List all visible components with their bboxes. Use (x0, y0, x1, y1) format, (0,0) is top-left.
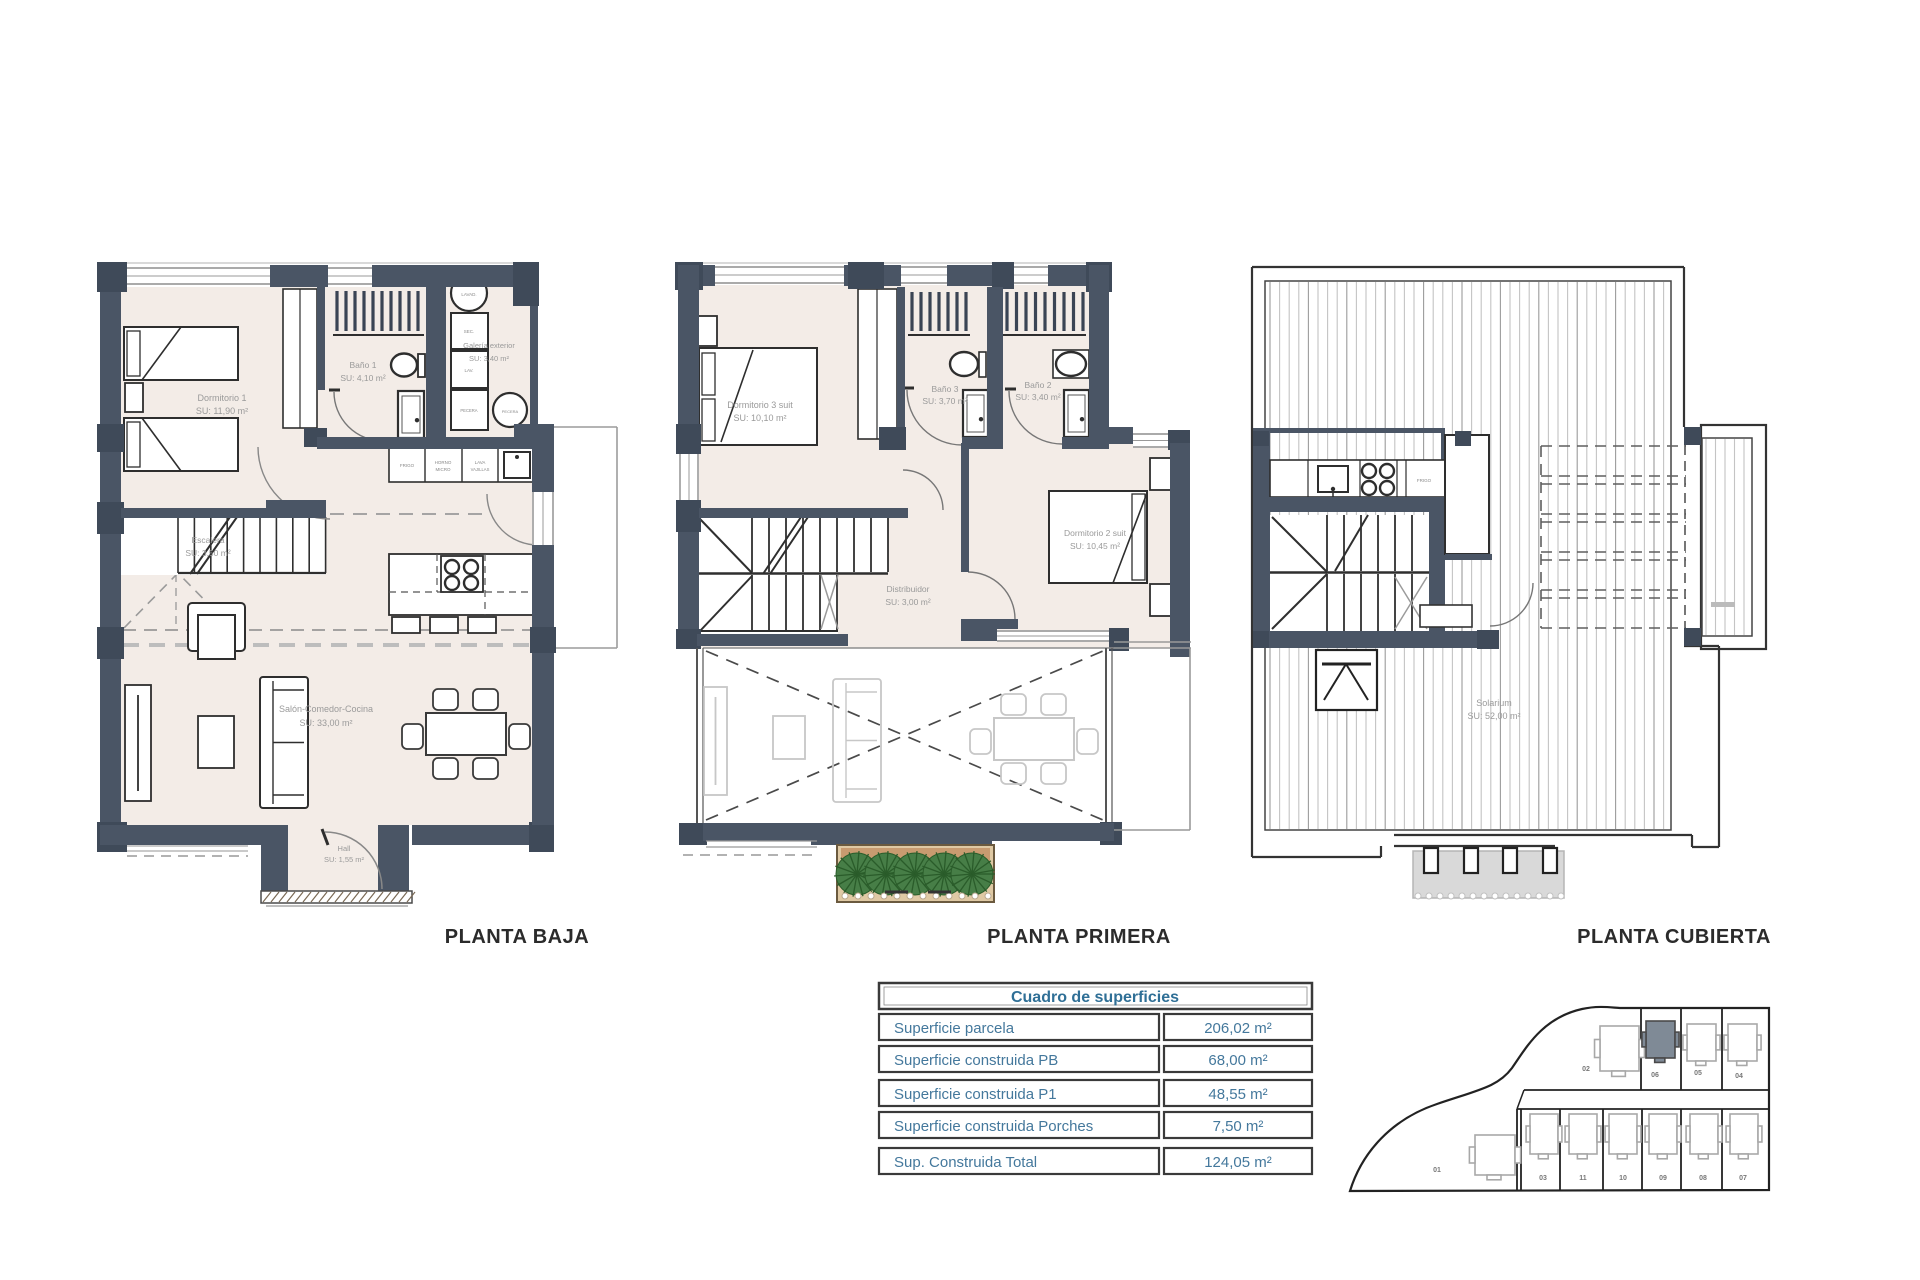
svg-text:7,50 m²: 7,50 m² (1213, 1118, 1264, 1135)
svg-text:Baño 3: Baño 3 (932, 384, 959, 394)
svg-text:Superficie construida PB: Superficie construida PB (894, 1052, 1058, 1069)
svg-text:SU: 3,00 m²: SU: 3,00 m² (885, 597, 931, 607)
svg-text:LAVAD.: LAVAD. (461, 292, 476, 297)
svg-text:SU: 10,45 m²: SU: 10,45 m² (1070, 541, 1120, 551)
svg-text:PLANTA PRIMERA: PLANTA PRIMERA (987, 926, 1171, 948)
svg-text:10: 10 (1619, 1175, 1627, 1182)
svg-text:SU: 1,55 m²: SU: 1,55 m² (324, 855, 365, 864)
svg-text:FRIGO: FRIGO (1417, 478, 1432, 483)
svg-text:Galería exterior: Galería exterior (463, 341, 515, 350)
svg-text:Escalera: Escalera (191, 535, 224, 545)
svg-text:Solarium: Solarium (1476, 698, 1512, 708)
svg-text:48,55 m²: 48,55 m² (1208, 1086, 1267, 1103)
svg-text:04: 04 (1735, 1073, 1743, 1080)
svg-text:68,00 m²: 68,00 m² (1208, 1052, 1267, 1069)
svg-text:Baño 2: Baño 2 (1025, 380, 1052, 390)
svg-text:Salón-Comedor-Cocina: Salón-Comedor-Cocina (279, 704, 373, 714)
svg-text:LAV.: LAV. (464, 368, 473, 373)
svg-text:06: 06 (1651, 1072, 1659, 1079)
svg-text:SU: 3,70 m²: SU: 3,70 m² (922, 396, 968, 406)
svg-text:Dormitorio 1: Dormitorio 1 (197, 393, 246, 403)
svg-text:Distribuidor: Distribuidor (887, 584, 930, 594)
svg-text:05: 05 (1694, 1070, 1702, 1077)
svg-text:08: 08 (1699, 1175, 1707, 1182)
svg-text:PECERA: PECERA (460, 408, 477, 413)
svg-text:LAVA: LAVA (475, 460, 486, 465)
svg-text:02: 02 (1582, 1066, 1590, 1073)
svg-text:Baño 1: Baño 1 (350, 360, 377, 370)
svg-text:206,02 m²: 206,02 m² (1204, 1020, 1272, 1037)
svg-text:SU: 52,00 m²: SU: 52,00 m² (1467, 711, 1520, 721)
svg-text:SEC.: SEC. (464, 329, 475, 334)
svg-text:PLANTA CUBIERTA: PLANTA CUBIERTA (1577, 926, 1771, 948)
svg-text:Superficie construida Porches: Superficie construida Porches (894, 1118, 1093, 1135)
svg-text:03: 03 (1539, 1175, 1547, 1182)
svg-text:SU: 3,40 m²: SU: 3,40 m² (469, 354, 510, 363)
svg-text:Cuadro de superficies: Cuadro de superficies (1011, 989, 1179, 1006)
svg-text:Dormitorio 3 suit: Dormitorio 3 suit (727, 400, 793, 410)
svg-text:Hall: Hall (338, 844, 351, 853)
svg-text:124,05 m²: 124,05 m² (1204, 1154, 1272, 1171)
svg-text:PECERA: PECERA (502, 409, 519, 414)
svg-text:SU: 3,40 m²: SU: 3,40 m² (1015, 392, 1061, 402)
svg-text:Sup. Construida Total: Sup. Construida Total (894, 1154, 1037, 1171)
svg-text:Superficie parcela: Superficie parcela (894, 1020, 1015, 1037)
svg-text:SU: 4,10 m²: SU: 4,10 m² (340, 373, 386, 383)
svg-text:Dormitorio 2 suit: Dormitorio 2 suit (1064, 528, 1127, 538)
svg-text:SU: 3,50 m²: SU: 3,50 m² (185, 548, 231, 558)
svg-text:09: 09 (1659, 1175, 1667, 1182)
svg-text:SU: 11,90 m²: SU: 11,90 m² (196, 406, 248, 416)
svg-text:Superficie construida P1: Superficie construida P1 (894, 1086, 1057, 1103)
svg-text:11: 11 (1579, 1175, 1587, 1182)
svg-text:FRIGO: FRIGO (400, 463, 415, 468)
svg-text:01: 01 (1433, 1167, 1441, 1174)
svg-text:VAJILLAS: VAJILLAS (471, 467, 490, 472)
svg-text:SU: 10,10 m²: SU: 10,10 m² (733, 413, 786, 423)
svg-text:PLANTA BAJA: PLANTA BAJA (445, 926, 589, 948)
svg-text:07: 07 (1739, 1175, 1747, 1182)
svg-text:MICRO: MICRO (436, 467, 451, 472)
svg-text:SU: 33,00 m²: SU: 33,00 m² (299, 718, 352, 728)
svg-text:HORNO: HORNO (435, 460, 452, 465)
